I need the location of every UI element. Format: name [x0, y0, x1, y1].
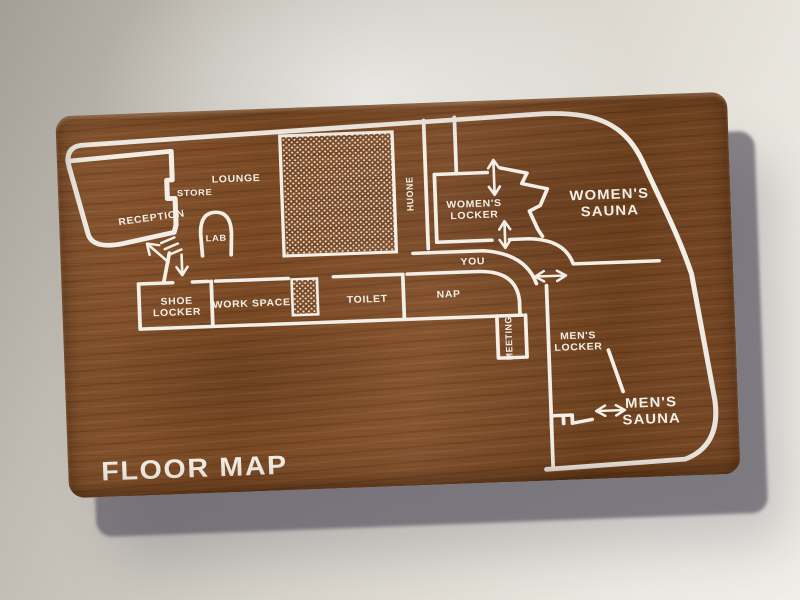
mens-locker-label-2: LOCKER	[554, 341, 603, 353]
mens-sauna-label-2: SAUNA	[622, 411, 681, 429]
mens-sauna-label-1: MEN'S	[625, 394, 677, 411]
shoe-locker-label-2: LOCKER	[153, 307, 202, 319]
floor-map-title: FLOOR MAP	[101, 450, 289, 487]
mens-locker-left-wall	[546, 285, 553, 469]
floor-map-drawing: LOUNGE STORE RECEPTION LAB HUONE WOMEN'S…	[55, 92, 741, 498]
wooden-floor-map-sign: LOUNGE STORE RECEPTION LAB HUONE WOMEN'S…	[55, 92, 741, 498]
reception-room-wall	[68, 151, 177, 246]
nap-label: NAP	[436, 289, 460, 300]
womens-locker-wall-top	[434, 173, 487, 175]
lounge-label: LOUNGE	[212, 173, 261, 185]
mens-sauna-door-arrow-icon	[596, 405, 625, 416]
entrance-down-arrow-icon	[176, 254, 188, 275]
bottom-row-left-wall	[139, 284, 141, 329]
toilet-top-wall	[333, 274, 400, 276]
huone-label: HUONE	[404, 176, 416, 211]
womens-sauna-bottom-wall	[510, 234, 660, 266]
mens-locker-door-arrow-icon	[535, 270, 566, 281]
mens-sauna-bench	[551, 414, 592, 429]
workspace-top-wall	[216, 278, 289, 281]
work-space-label: WORK SPACE	[213, 297, 291, 310]
womens-locker-upper-arrow-icon	[488, 160, 500, 195]
womens-locker-label-2: LOCKER	[450, 210, 499, 222]
mens-locker-label-1: MEN'S	[560, 330, 596, 342]
hatched-room-large	[280, 132, 397, 256]
womens-sauna-label-1: WOMEN'S	[569, 186, 649, 204]
meeting-label: MEETING	[503, 316, 515, 360]
shoe-locker-top-wall	[139, 281, 208, 284]
womens-locker-wall-left-upper	[454, 117, 456, 173]
womens-locker-wall-bottom	[437, 240, 492, 242]
shoe-locker-label-1: SHOE	[160, 296, 193, 308]
store-label: STORE	[177, 187, 213, 198]
you-label: YOU	[460, 256, 485, 268]
nap-top-wall	[407, 270, 520, 318]
huone-wall	[424, 120, 429, 248]
lab-label: LAB	[205, 233, 227, 243]
wall-background: { "sign": { "title": "FLOOR MAP" }, "roo…	[0, 0, 800, 600]
womens-locker-wall-left-lower	[434, 174, 436, 242]
toilet-label: TOILET	[347, 294, 389, 306]
entrance-stairs-icon	[147, 237, 182, 263]
corridor-wall	[413, 249, 536, 288]
womens-sauna-label-2: SAUNA	[580, 203, 639, 221]
toilet-nap-divider	[403, 274, 405, 319]
hatched-room-small	[292, 278, 319, 315]
womens-locker-lower-arrow-icon	[499, 221, 511, 248]
mens-locker-sauna-divider	[608, 349, 623, 392]
